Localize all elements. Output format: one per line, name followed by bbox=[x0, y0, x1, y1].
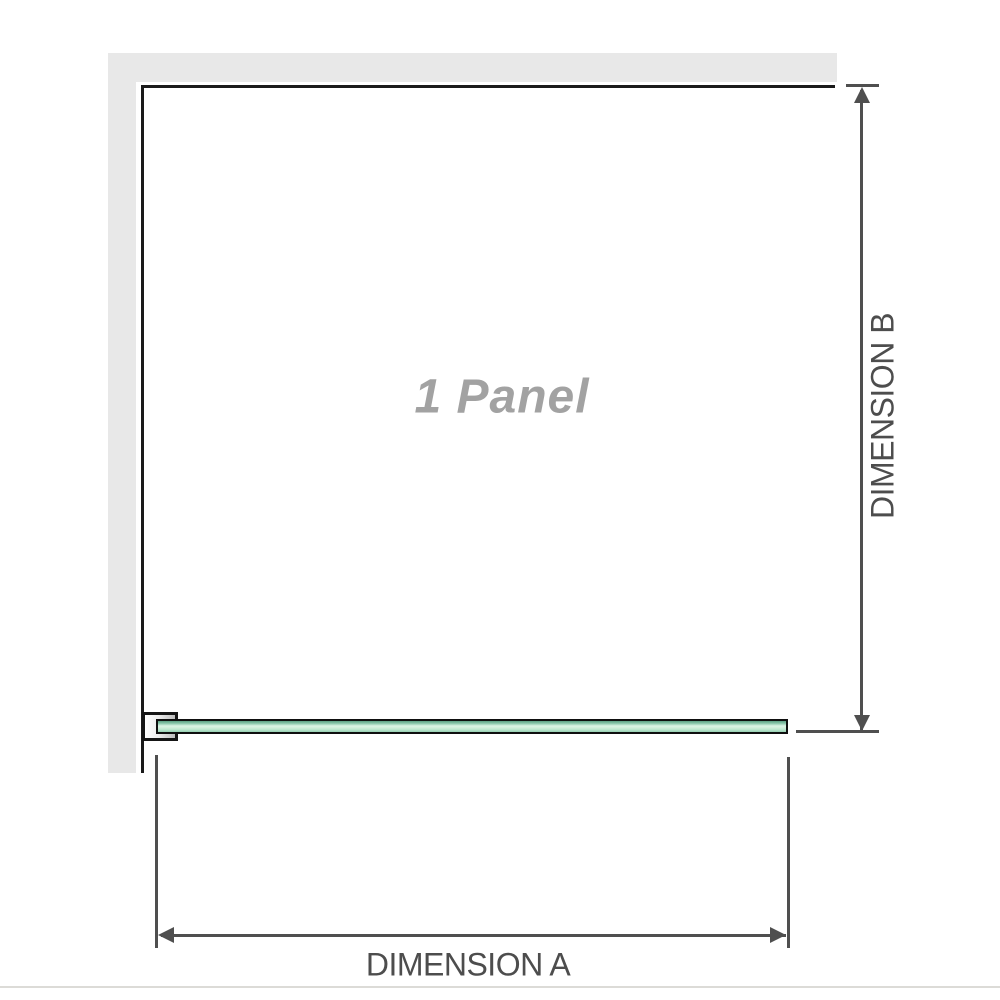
panel-edge-left bbox=[141, 85, 144, 773]
dimension-a-extension-left bbox=[155, 755, 158, 948]
arrow-down-icon bbox=[854, 715, 870, 731]
wall-segment-left bbox=[108, 53, 136, 773]
arrow-right-icon bbox=[770, 927, 786, 943]
glass-panel bbox=[156, 719, 788, 734]
shower-panel-diagram: 1 Panel DIMENSION B DIMENSION A bbox=[0, 0, 1000, 1000]
arrow-left-icon bbox=[158, 927, 174, 943]
dimension-b-label: DIMENSION B bbox=[865, 313, 902, 519]
baseline-rule bbox=[0, 986, 1000, 988]
dimension-b-line bbox=[860, 90, 863, 730]
dimension-a-line bbox=[161, 934, 786, 937]
panel-count-label: 1 Panel bbox=[414, 370, 589, 425]
arrow-up-icon bbox=[854, 87, 870, 103]
panel-edge-top bbox=[141, 85, 835, 88]
wall-segment-top bbox=[108, 53, 837, 82]
dimension-a-label: DIMENSION A bbox=[366, 947, 570, 984]
dimension-a-extension-right bbox=[787, 757, 790, 948]
